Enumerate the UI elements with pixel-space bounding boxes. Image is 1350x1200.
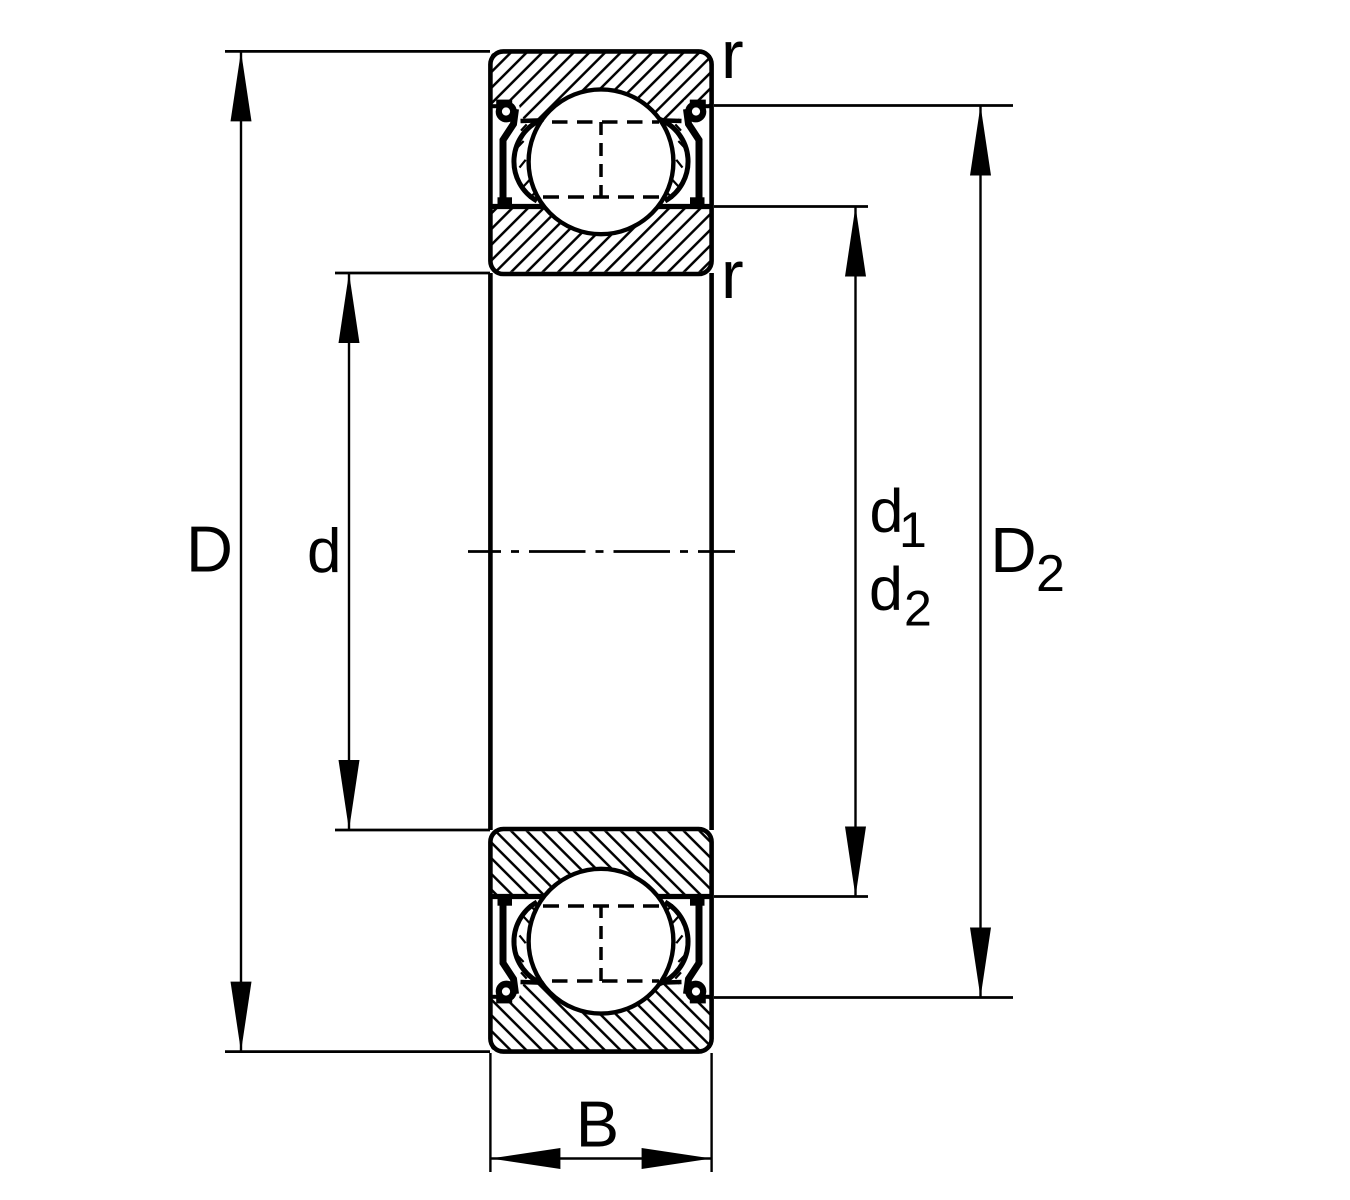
svg-text:D: D (990, 514, 1036, 586)
svg-text:d: d (869, 555, 903, 623)
svg-text:B: B (576, 1088, 619, 1161)
svg-text:r: r (721, 17, 744, 93)
svg-text:2: 2 (1036, 545, 1065, 603)
svg-text:2: 2 (904, 581, 932, 637)
svg-text:D: D (186, 513, 233, 586)
svg-text:r: r (721, 237, 744, 313)
svg-text:1: 1 (899, 502, 927, 558)
svg-text:d: d (307, 517, 341, 586)
